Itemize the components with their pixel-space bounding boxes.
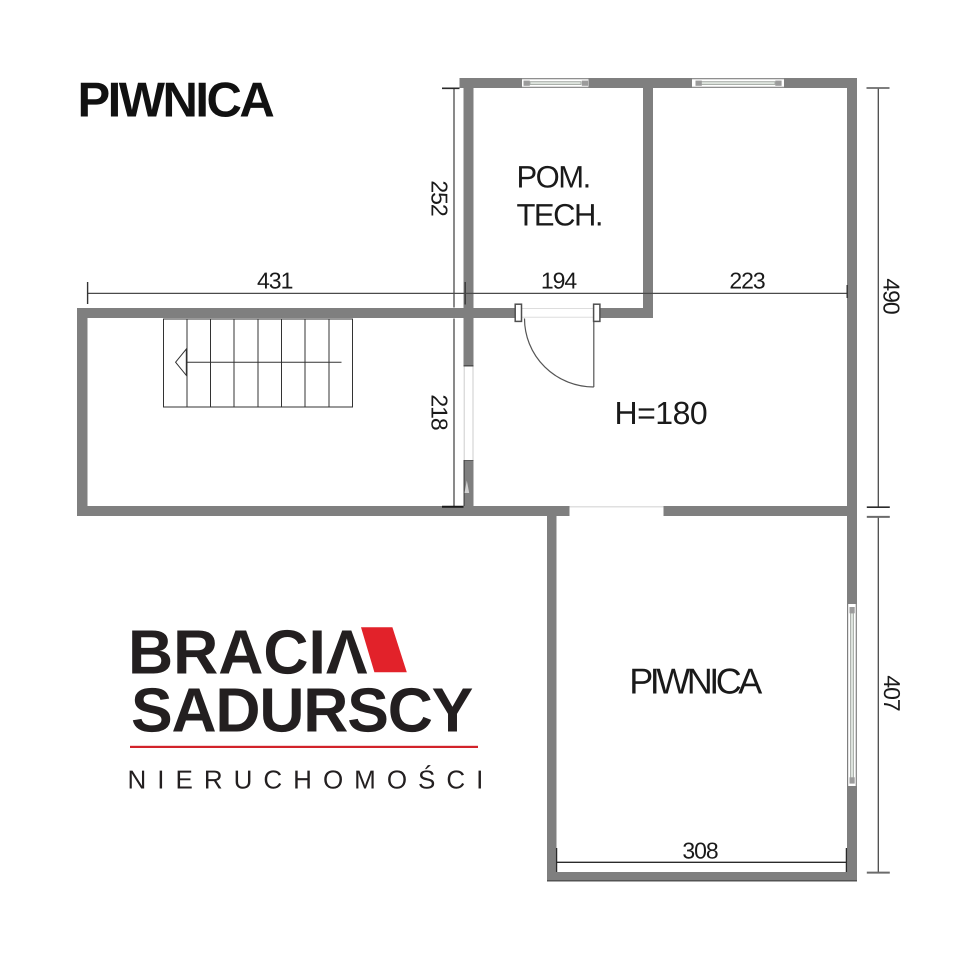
svg-text:431: 431 — [257, 268, 293, 294]
svg-text:PIWNICA: PIWNICA — [629, 661, 762, 702]
svg-text:407: 407 — [879, 675, 905, 711]
svg-text:H=180: H=180 — [615, 395, 708, 431]
svg-text:SADURSCY: SADURSCY — [131, 676, 473, 746]
svg-text:PIWNICA: PIWNICA — [78, 74, 275, 128]
svg-text:218: 218 — [427, 394, 453, 430]
svg-text:NIERUCHOMOŚCI: NIERUCHOMOŚCI — [128, 765, 495, 795]
svg-text:POM.: POM. — [517, 160, 590, 195]
svg-text:490: 490 — [879, 278, 905, 314]
svg-text:TECH.: TECH. — [517, 198, 603, 233]
svg-text:308: 308 — [682, 838, 718, 864]
svg-text:223: 223 — [729, 268, 765, 294]
svg-text:194: 194 — [541, 268, 578, 294]
svg-text:252: 252 — [427, 180, 453, 216]
